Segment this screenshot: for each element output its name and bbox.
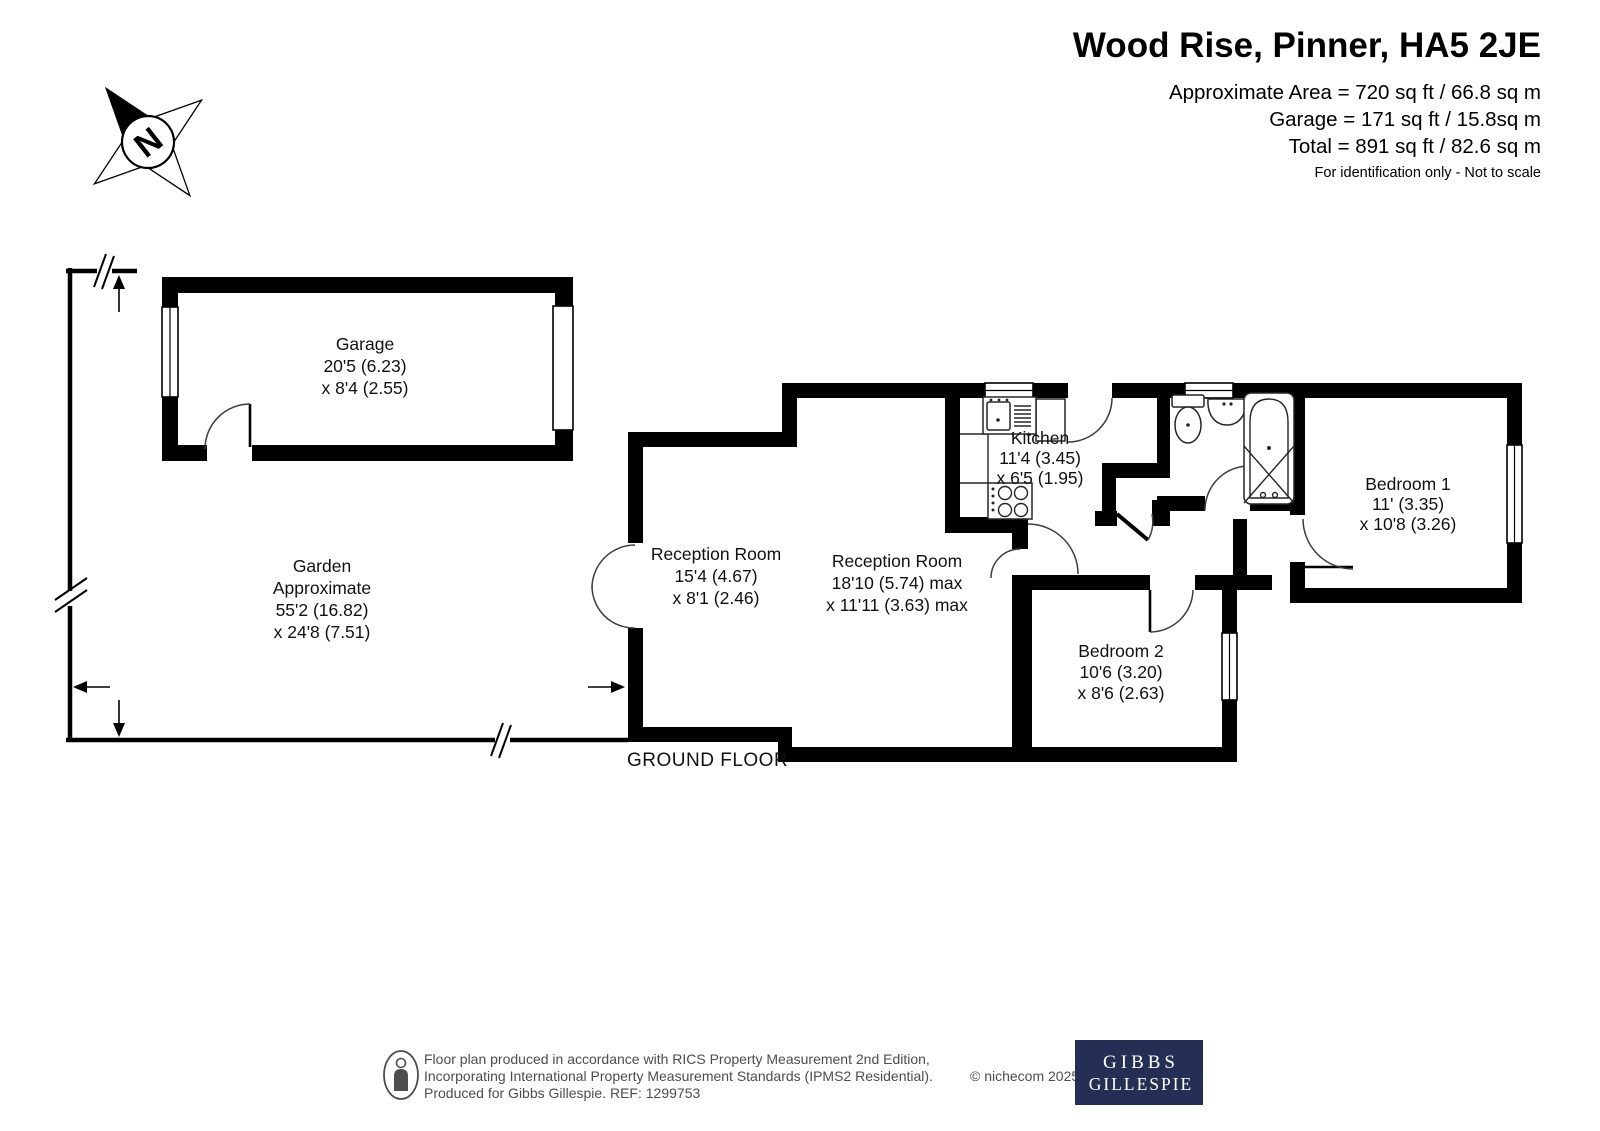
- svg-text:15'4 (4.67): 15'4 (4.67): [674, 566, 757, 586]
- logo-line-2: GILLESPIE: [1089, 1074, 1194, 1094]
- bath-with-shower: [1244, 393, 1294, 504]
- floor-label: GROUND FLOOR: [627, 750, 788, 771]
- footer-line-3: Produced for Gibbs Gillespie. REF: 12997…: [424, 1085, 700, 1101]
- label-garden: Garden Approximate 55'2 (16.82) x 24'8 (…: [273, 556, 371, 642]
- svg-text:Garden: Garden: [293, 556, 351, 576]
- kitchen-side-door-arc: [1068, 398, 1112, 442]
- compass-icon: N: [53, 47, 244, 238]
- footer-line-1: Floor plan produced in accordance with R…: [424, 1051, 930, 1067]
- garden-boundary: [55, 254, 628, 758]
- floorplan-page: Wood Rise, Pinner, HA5 2JE Approximate A…: [0, 0, 1600, 1131]
- footer: Floor plan produced in accordance with R…: [384, 1040, 1203, 1105]
- kitchen-counter: [960, 434, 988, 483]
- bedroom2-door-arc: [1150, 590, 1193, 632]
- french-door-bottom-arc: [592, 586, 635, 628]
- bathroom-door-arc: [1205, 466, 1249, 510]
- approximate-area-text: Approximate Area = 720 sq ft / 66.8 sq m: [1169, 81, 1541, 104]
- svg-text:x 8'1 (2.46): x 8'1 (2.46): [673, 588, 760, 608]
- garden-dim-arrow-right: [588, 681, 625, 693]
- label-kitchen: Kitchen 11'4 (3.45) x 6'5 (1.95): [997, 428, 1084, 488]
- garden-dim-arrow-left: [73, 681, 110, 693]
- svg-text:55'2 (16.82): 55'2 (16.82): [276, 600, 369, 620]
- kitchen-hall-door-arc: [1028, 524, 1078, 574]
- kitchen-hob: [988, 483, 1032, 519]
- garden-dim-arrow-down: [113, 700, 125, 737]
- front-door-arc: [1148, 514, 1153, 540]
- header: Wood Rise, Pinner, HA5 2JE Approximate A…: [1073, 26, 1541, 181]
- svg-text:Reception Room: Reception Room: [832, 551, 962, 571]
- front-door-leaf: [1117, 514, 1148, 540]
- garage-door: [553, 306, 573, 430]
- garage-area-text: Garage = 171 sq ft / 15.8sq m: [1269, 108, 1541, 131]
- svg-text:Approximate: Approximate: [273, 578, 371, 598]
- footer-line-2: Incorporating International Property Mea…: [424, 1068, 933, 1084]
- garden-dim-arrow-up: [113, 275, 125, 312]
- svg-text:x 8'6 (2.63): x 8'6 (2.63): [1078, 683, 1165, 703]
- house-walls: [628, 383, 1522, 762]
- garage-side-door-arc: [205, 404, 250, 449]
- svg-text:11'4 (3.45): 11'4 (3.45): [999, 448, 1081, 468]
- svg-text:Kitchen: Kitchen: [1011, 428, 1069, 448]
- svg-text:Bedroom 2: Bedroom 2: [1078, 641, 1164, 661]
- svg-text:10'6 (3.20): 10'6 (3.20): [1079, 662, 1162, 682]
- label-bedroom-2: Bedroom 2 10'6 (3.20) x 8'6 (2.63): [1078, 641, 1165, 703]
- svg-text:18'10 (5.74) max: 18'10 (5.74) max: [832, 573, 963, 593]
- svg-text:Garage: Garage: [336, 334, 394, 354]
- svg-text:Bedroom 1: Bedroom 1: [1365, 474, 1451, 494]
- svg-text:Reception Room: Reception Room: [651, 544, 781, 564]
- copyright-text: © nichecom 2025.: [970, 1068, 1083, 1084]
- label-garage: Garage 20'5 (6.23) x 8'4 (2.55): [322, 334, 409, 398]
- reception-hall-door-arc: [991, 549, 1020, 578]
- disclaimer-text: For identification only - Not to scale: [1315, 165, 1541, 181]
- logo-line-1: GIBBS: [1103, 1052, 1179, 1073]
- label-reception-2: Reception Room 18'10 (5.74) max x 11'11 …: [826, 551, 968, 615]
- svg-text:x 24'8 (7.51): x 24'8 (7.51): [274, 622, 371, 642]
- total-area-text: Total = 891 sq ft / 82.6 sq m: [1289, 135, 1541, 158]
- french-door-top-arc: [592, 545, 635, 588]
- person-scale-icon: [384, 1051, 418, 1099]
- label-bedroom-1: Bedroom 1 11' (3.35) x 10'8 (3.26): [1360, 474, 1457, 534]
- bathroom-fixtures: [1172, 393, 1294, 504]
- page-title: Wood Rise, Pinner, HA5 2JE: [1073, 26, 1541, 65]
- label-reception-1: Reception Room 15'4 (4.67) x 8'1 (2.46): [651, 544, 781, 608]
- bedroom1-door-arc: [1303, 519, 1353, 569]
- svg-text:20'5 (6.23): 20'5 (6.23): [323, 356, 406, 376]
- svg-text:11' (3.35): 11' (3.35): [1372, 494, 1444, 514]
- basin: [1208, 399, 1246, 425]
- svg-text:x 11'11 (3.63) max: x 11'11 (3.63) max: [826, 595, 968, 615]
- gibbs-gillespie-logo: GIBBS GILLESPIE: [1075, 1040, 1203, 1105]
- toilet: [1172, 395, 1204, 443]
- svg-text:x 10'8 (3.26): x 10'8 (3.26): [1360, 514, 1457, 534]
- svg-text:x 8'4 (2.55): x 8'4 (2.55): [322, 378, 409, 398]
- svg-text:x 6'5 (1.95): x 6'5 (1.95): [997, 468, 1084, 488]
